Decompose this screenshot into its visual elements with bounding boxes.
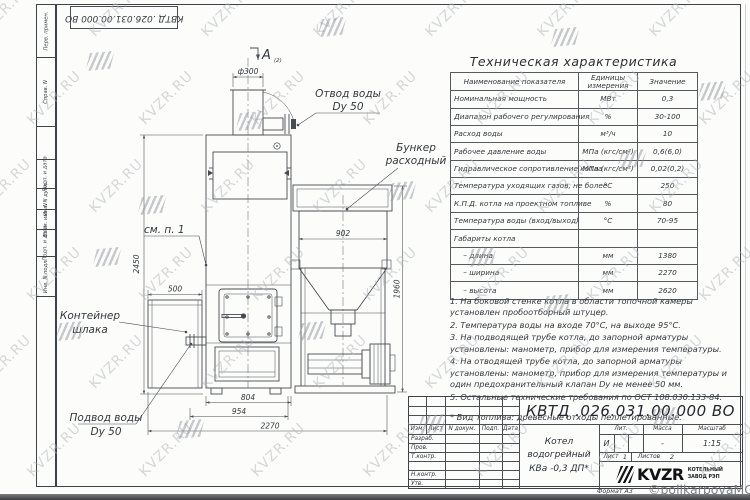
drawing-sheet: Перв. примен.Справ. NПодп. и датаИнв. N …: [0, 0, 750, 500]
product-name-line1: Котел водогрейный: [519, 436, 599, 463]
spec-cell: м³/ч: [579, 125, 638, 142]
mass-label: Масса: [643, 424, 682, 434]
spec-row: – длинамм1380: [451, 247, 698, 264]
spec-cell: – длина: [451, 247, 579, 264]
spec-table: Наименование показателя Единицы измерени…: [450, 72, 698, 300]
spec-header-units: Единицы измерения: [579, 73, 638, 91]
spec-header-name: Наименование показателя: [451, 73, 579, 91]
spec-row: – ширинамм2270: [451, 265, 698, 282]
kvzr-watermark-text: KVZR.RU: [0, 156, 35, 216]
spec-cell: мм: [579, 247, 638, 264]
spec-header-row: Наименование показателя Единицы измерени…: [451, 73, 698, 91]
spec-cell: Номинальная мощность: [451, 91, 579, 108]
sheet-label: Лист: [601, 452, 621, 461]
col-ndocum: N докум.: [445, 424, 479, 434]
margin-field-empty: [37, 127, 55, 159]
spec-row: Гидравлическое сопротивление котлаМПа (к…: [451, 160, 698, 177]
paper-edge: [745, 4, 746, 490]
spec-cell: – ширина: [451, 265, 579, 282]
col-data: Дата: [502, 424, 519, 434]
spec-cell: 80: [638, 195, 698, 212]
kvzr-watermark-text: KVZR.RU: [0, 0, 35, 40]
spec-cell: Гидравлическое сопротивление котла: [451, 160, 579, 177]
spec-cell: Температура воды (вход/выход): [451, 212, 579, 229]
row-razrab: Разраб.: [411, 434, 445, 443]
spec-cell: 2270: [638, 265, 698, 282]
document-number: КВТД .026.031.00.000 ВО: [519, 397, 742, 424]
kvzr-watermark-text: KVZR.RU: [0, 332, 35, 392]
note-line: 1. На боковой стенке котла в области топ…: [450, 296, 739, 319]
col-list: Лист: [426, 424, 445, 434]
spec-cell: [579, 230, 638, 247]
spec-cell: МПа (кгс/см²): [579, 160, 638, 177]
spec-cell: 250: [638, 178, 698, 195]
note-line: 4. На отводящей трубе котла, до запорной…: [450, 356, 739, 390]
col-podp: Подп.: [479, 424, 502, 434]
spec-row: Температура уходящих газов, не более°С25…: [451, 178, 698, 195]
row-tkontr: Т.контр.: [411, 452, 445, 461]
spec-cell: Рабочее давление воды: [451, 143, 579, 160]
spec-table-title: Техническая характеристика: [450, 54, 697, 69]
spec-row: Диапазон рабочего регулирования%30-100: [451, 108, 698, 125]
lit-value: И: [599, 434, 614, 452]
spec-cell: МПа (кгс/см²): [579, 143, 638, 160]
spec-cell: Температура уходящих газов, не более: [451, 178, 579, 195]
spec-row: Габариты котла: [451, 230, 698, 247]
kvzr-logo-icon: [615, 466, 636, 483]
note-line: 3. На подводящей трубе котла, до запорно…: [450, 332, 739, 355]
spec-row: Рабочее давление водыМПа (кгс/см²)0,6(6,…: [451, 143, 698, 160]
spec-cell: К.П.Д. котла на проектном топливе: [451, 195, 579, 212]
company-sub-line2: ЗАВОД РЭП: [688, 475, 723, 481]
top-stamp-number: КВТД .026.031.00.000 ВО: [65, 13, 184, 23]
margin-field-label: Перв. примен.: [43, 11, 49, 50]
spec-cell: Диапазон рабочего регулирования: [451, 108, 579, 125]
left-margin-column: Перв. примен.Справ. NПодп. и датаИнв. N …: [36, 4, 56, 487]
spec-cell: Расход воды: [451, 125, 579, 142]
company-subtitle: КОТЕЛЬНЫЙ ЗАВОД РЭП: [688, 468, 723, 480]
spec-cell: °С: [579, 212, 638, 229]
product-name-line2: КВа -0,3 ДП*: [529, 463, 589, 477]
spec-table-body: Номинальная мощностьМВт0,3Диапазон рабоч…: [451, 91, 698, 300]
scale-label: Масштаб: [682, 424, 742, 434]
spec-cell: 0,3: [638, 91, 698, 108]
margin-field: Справ. N: [37, 58, 55, 128]
margin-field-label: Справ. N: [43, 80, 49, 104]
spec-row: Температура воды (вход/выход)°С70-95: [451, 212, 698, 229]
margin-field: Инв. N подл.: [37, 257, 55, 297]
top-stamp: КВТД .026.031.00.000 ВО: [70, 6, 178, 29]
spec-header-value: Значение: [638, 73, 698, 91]
spec-cell: 10: [638, 125, 698, 142]
sheets-value: 2: [667, 452, 677, 461]
spec-cell: Габариты котла: [451, 230, 579, 247]
row-prov: Пров.: [411, 443, 445, 452]
lit-label: Лит.: [599, 424, 643, 434]
margin-field-empty: [37, 297, 55, 486]
spec-cell: 0,02(0,2): [638, 160, 698, 177]
note-line: 2. Температура воды на входе 70°С, на вы…: [450, 320, 739, 331]
spec-cell: 30-100: [638, 108, 698, 125]
spec-cell: 70-95: [638, 212, 698, 229]
row-nkontr: Н.контр.: [411, 470, 445, 479]
credit-watermark: ©polikarpovaMG2021: [648, 482, 750, 497]
row-utv: Утв.: [411, 479, 445, 488]
spec-cell: МВт: [579, 91, 638, 108]
spec-cell: 1380: [638, 247, 698, 264]
margin-field: Подп. и дата: [37, 230, 55, 256]
margin-field-label: Инв. N подл.: [43, 259, 49, 293]
spec-row: К.П.Д. котла на проектном топливе%80: [451, 195, 698, 212]
spec-cell: [638, 230, 698, 247]
spec-row: Расход водым³/ч10: [451, 125, 698, 142]
mass-value: -: [643, 434, 682, 452]
title-block: КВТД .026.031.00.000 ВО Котел водогрейны…: [408, 396, 743, 489]
col-izm: Изм.: [409, 424, 426, 434]
margin-field: Перв. примен.: [37, 5, 55, 58]
sheet-value: 1: [620, 452, 630, 461]
spec-cell: 0,6(6,0): [638, 143, 698, 160]
margin-field-label: Подп. и дата: [43, 225, 49, 260]
scale-value: 1:15: [682, 434, 742, 452]
sheets-label: Листов: [635, 452, 663, 461]
photo-bottom-edge: [0, 494, 750, 500]
spec-cell: мм: [579, 265, 638, 282]
product-name: Котел водогрейный КВа -0,3 ДП*: [519, 424, 599, 488]
spec-row: Номинальная мощностьМВт0,3: [451, 91, 698, 108]
